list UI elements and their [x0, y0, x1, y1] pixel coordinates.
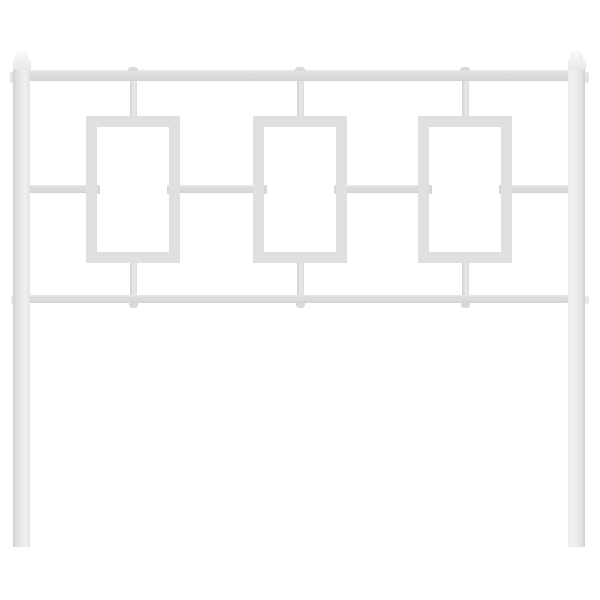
left-post [13, 60, 30, 547]
panel-3-bottom-connector [462, 263, 469, 295]
weld-tab-bottom-3 [461, 303, 470, 308]
weld-tick [499, 185, 502, 194]
weld-nub-top-2 [295, 67, 305, 71]
right-finial-knob [570, 51, 583, 62]
weld-tick [264, 185, 267, 194]
weld-nub-top-3 [460, 67, 470, 71]
right-post [568, 60, 585, 547]
weld-tick [429, 185, 432, 194]
headboard-product-photo [0, 0, 600, 600]
panel-rectangle-2 [253, 116, 347, 263]
panel-1-bottom-connector [130, 263, 137, 295]
rail-end-nub [585, 72, 589, 83]
weld-tick [97, 185, 100, 194]
top-rail [30, 70, 568, 81]
panel-2-bottom-connector [297, 263, 304, 295]
weld-tick [167, 185, 170, 194]
weld-nub-top-1 [128, 67, 138, 71]
weld-tab-bottom-2 [296, 303, 305, 308]
weld-tick [334, 185, 337, 194]
bottom-rail [30, 295, 568, 303]
panel-rectangle-3 [418, 116, 512, 263]
rail-end-nub [585, 296, 589, 304]
left-finial-knob [15, 51, 28, 62]
panel-1-top-connector [130, 81, 137, 116]
weld-tab-bottom-1 [129, 303, 138, 308]
panel-3-top-connector [462, 81, 469, 116]
panel-2-top-connector [297, 81, 304, 116]
panel-rectangle-1 [86, 116, 180, 263]
